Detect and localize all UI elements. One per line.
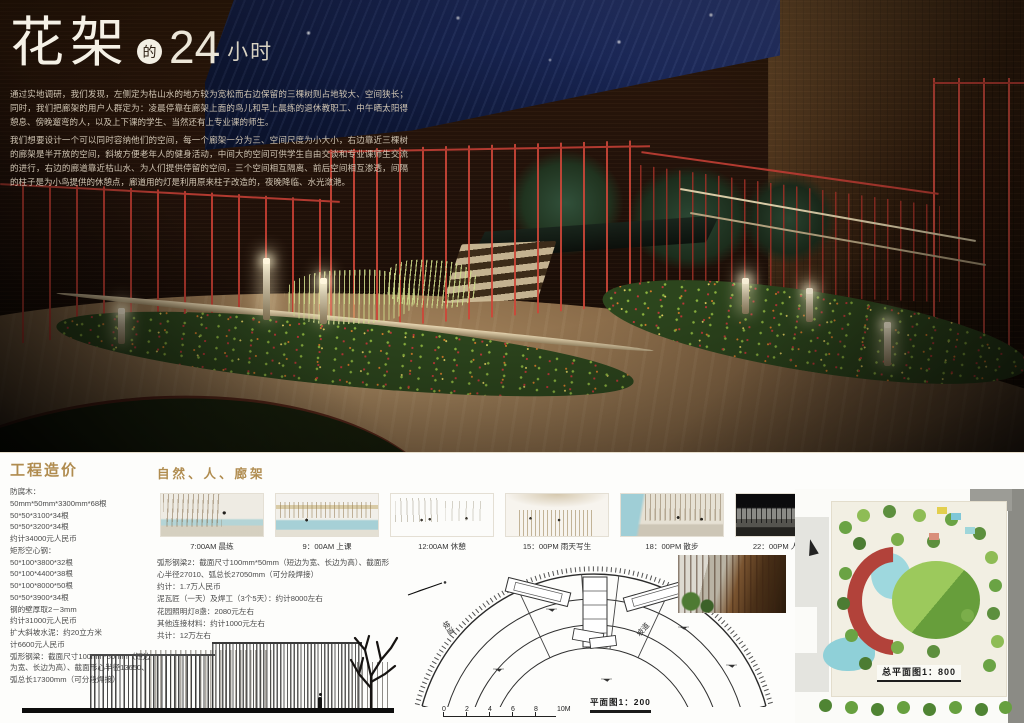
cost-line: 50mm*50mm*3300mm*68根	[10, 498, 152, 510]
thumbnail-image	[390, 493, 494, 537]
north-arrow-icon	[408, 581, 446, 595]
thumbnail-caption: 15：00PM 雨天写生	[505, 541, 609, 552]
thumbnail-rainy-sketching: 15：00PM 雨天写生	[505, 493, 609, 552]
elevation-drawing	[22, 637, 394, 719]
pergola-beam	[933, 82, 1024, 84]
thumbnail-image	[505, 493, 609, 537]
lower-panel: 工程造价 防腐木： 50mm*50mm*3300mm*68根 50*50*310…	[0, 452, 1024, 723]
intro-paragraph-2: 我们想要设计一个可以同时容纳他们的空间，每一个廊架一分为三、空间尺度为小大小，右…	[10, 134, 408, 189]
scale-tick: 6	[511, 706, 534, 713]
cost-line: 约计31000元人民币	[10, 615, 152, 627]
person-figure	[318, 697, 322, 708]
master-site-plan: 总平面图1：800	[795, 489, 1024, 723]
cost-line: 50*100*4400*38根	[10, 568, 152, 580]
cost-line: 钢的壁厚取2－3mm	[10, 604, 152, 616]
scale-tick: 0	[442, 706, 465, 713]
ornamental-grass	[384, 258, 478, 311]
cost-line: 50*50*3200*34根	[10, 521, 152, 533]
intro-paragraph-1: 通过实地调研，我们发现，左侧定为枯山水的地方较为宽松而右边保留的三棵树则占地较大…	[10, 88, 408, 129]
thumbnail-caption: 18：00PM 散步	[620, 541, 724, 552]
title-main: 花架	[10, 16, 130, 70]
title-number: 24	[169, 24, 220, 70]
daily-heading: 自然、人、廊架	[157, 463, 266, 482]
cost-line: 矩形空心钢：	[10, 545, 152, 557]
plan-roof-panel	[505, 577, 570, 606]
scale-ticks: 0 2 4 6 8 10M	[442, 706, 580, 713]
cost-line: 约计34000元人民币	[10, 533, 152, 545]
cost-line: 防腐木：	[10, 486, 152, 498]
thumbnail-caption: 7:00AM 晨练	[160, 541, 264, 552]
cost-line: 50*50*3900*34根	[10, 592, 152, 604]
thumbnail-rest: 12:00AM 休憩	[390, 493, 494, 552]
bollard-light	[118, 308, 125, 344]
elevation-posts	[90, 654, 215, 708]
scale-tick: 10M	[557, 706, 580, 713]
scale-tick: 4	[488, 706, 511, 713]
scale-bar: 0 2 4 6 8 10M 平面图1：200	[442, 696, 651, 713]
road-east	[1008, 489, 1024, 723]
cost-line: 50*100*8000*50根	[10, 580, 152, 592]
building-notch	[795, 607, 817, 653]
title-unit: 小时	[227, 36, 273, 66]
intro-text: 通过实地调研，我们发现，左侧定为枯山水的地方较为宽松而右边保留的三棵树则占地较大…	[10, 88, 408, 194]
bollard-light	[320, 278, 327, 324]
daytime-render-thumbnail	[678, 555, 786, 613]
scale-tick: 2	[465, 706, 488, 713]
thumbnail-class: 9：00AM 上课	[275, 493, 379, 552]
bollard-light	[884, 322, 891, 366]
plan-scale-label: 平面图1：200	[590, 696, 651, 713]
tree-dots	[795, 489, 808, 502]
spec-line: 约计：1.7万人民币	[157, 581, 395, 593]
thumbnail-stroll: 18：00PM 散步	[620, 493, 724, 552]
ramp-label-left: 坡道	[440, 619, 457, 637]
oval-lawn	[892, 561, 980, 639]
thumbnail-image	[620, 493, 724, 537]
thumbnail-morning-exercise: 7:00AM 晨练	[160, 493, 264, 552]
cost-line: 50*50*3100*34根	[10, 510, 152, 522]
spec-line: 泥瓦匠（一天）及焊工（3个5天）：约计8000左右	[157, 593, 395, 605]
title-particle-badge: 的	[137, 39, 162, 64]
pergola-posts-right	[933, 78, 1024, 346]
spec-line: 弧形钢梁2：截面尺寸100mm*50mm（短边为宽、长边为高）、截面形心半径27…	[157, 557, 395, 581]
playground-elements	[937, 507, 947, 514]
bollard-light	[263, 258, 270, 320]
bollard-light	[742, 278, 749, 314]
thumbnail-image	[160, 493, 264, 537]
presentation-board: 花架 的 24 小时 通过实地调研，我们发现，左侧定为枯山水的地方较为宽松而右边…	[0, 0, 1024, 723]
spec-line: 其他连接材料：约计1000元左右	[157, 618, 395, 630]
spec-line: 花园照明灯8盏：2080元左右	[157, 606, 395, 618]
thumbnail-image	[275, 493, 379, 537]
cost-heading: 工程造价	[10, 459, 152, 480]
daily-thumbnails: 7:00AM 晨练 9：00AM 上课 12:00AM 休憩 15：00PM 雨…	[160, 493, 839, 552]
ground-line	[22, 708, 394, 713]
hero-night-render: 花架 的 24 小时 通过实地调研，我们发现，左侧定为枯山水的地方较为宽松而右边…	[0, 0, 1024, 452]
page-title: 花架 的 24 小时	[10, 16, 273, 70]
thumbnail-caption: 9：00AM 上课	[275, 541, 379, 552]
thumbnail-caption: 12:00AM 休憩	[390, 541, 494, 552]
scale-tick: 8	[534, 706, 557, 713]
bare-tree-icon	[340, 630, 402, 710]
cost-line: 50*100*3800*32根	[10, 557, 152, 569]
master-plan-scale-label: 总平面图1：800	[877, 665, 961, 682]
bollard-light	[806, 288, 813, 322]
